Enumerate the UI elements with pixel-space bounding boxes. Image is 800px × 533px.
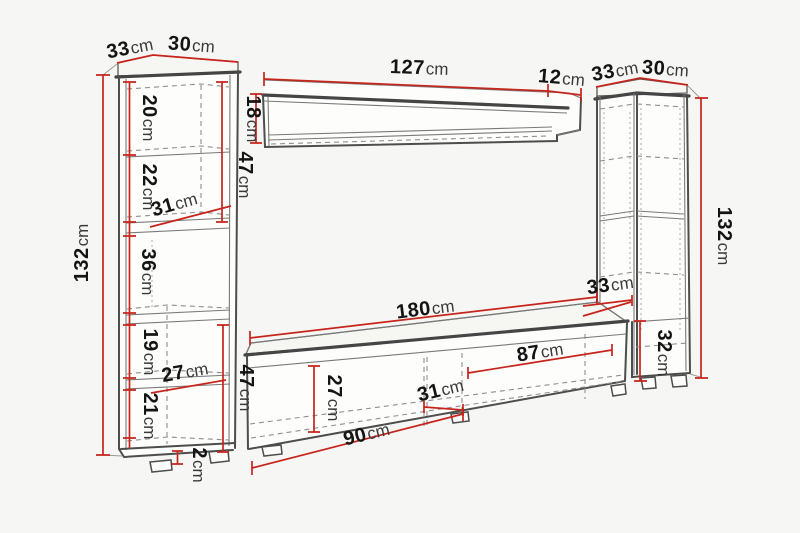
tv-stand-foot-right: [611, 384, 626, 396]
label-tv-front-height: 27cm: [323, 375, 345, 422]
tv-stand-foot-middle: [451, 412, 469, 423]
label-shelf-width: 127cm: [390, 56, 449, 80]
dim-right-height-132: [695, 98, 708, 378]
label-shelf-depth: 12cm: [537, 65, 586, 91]
label-left-section-4: 19cm: [139, 329, 161, 376]
left-cabinet-body-face: [118, 55, 238, 457]
label-left-section-1: 20cm: [138, 95, 160, 142]
label-tv-width: 180cm: [395, 295, 456, 324]
left-cabinet-foot-left: [150, 460, 172, 472]
label-left-section-3: 36cm: [137, 249, 159, 296]
label-left-plinth: 2cm: [188, 447, 210, 482]
right-cabinet-foot-right: [671, 375, 687, 387]
label-right-top-width: 30cm: [641, 56, 689, 81]
label-left-upper-47: 47cm: [234, 152, 256, 199]
label-left-lower-47: 47cm: [235, 365, 257, 412]
furniture-dimension-diagram: 33cm 30cm 132cm 20cm 22cm 36cm 19cm 21cm…: [0, 0, 800, 533]
label-left-section-5: 21cm: [139, 393, 161, 440]
label-left-top-width: 30cm: [167, 32, 215, 57]
label-left-height: 132cm: [71, 224, 93, 283]
label-right-lower-height: 32cm: [653, 330, 675, 377]
right-cabinet-foot-left: [641, 377, 656, 389]
label-right-height: 132cm: [713, 207, 735, 266]
label-shelf-height: 18cm: [242, 96, 264, 143]
tv-stand-foot-left: [262, 445, 282, 456]
diagram-canvas: 33cm 30cm 132cm 20cm 22cm 36cm 19cm 21cm…: [0, 0, 800, 533]
dim-left-height-132: [96, 75, 110, 455]
